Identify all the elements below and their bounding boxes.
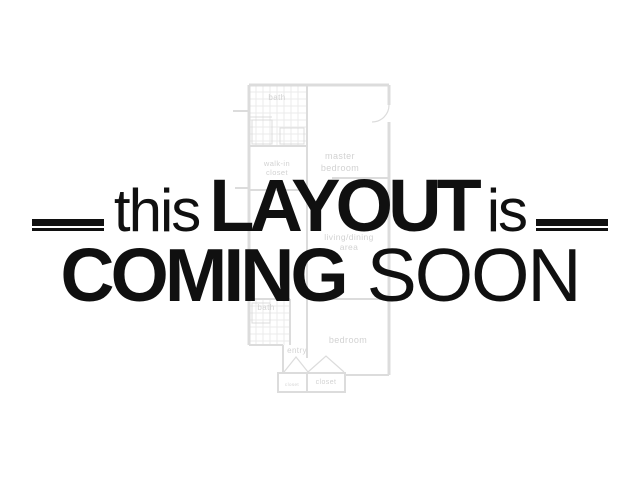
right-divider-bars [536, 219, 608, 231]
bath-upper-label: bath [268, 93, 285, 102]
headline-word-soon: SOON [367, 238, 580, 313]
right-divider-thin-rule [536, 228, 608, 231]
headline-line2: COMING SOON [0, 238, 640, 313]
left-divider-bars [32, 219, 104, 231]
bedroom-label: bedroom [329, 335, 367, 345]
headline-word-coming: COMING [60, 238, 344, 313]
headline-line1: this LAYOUT is [0, 169, 640, 243]
left-divider-thick-rule [32, 219, 104, 226]
master-bedroom-label-line1: master [325, 151, 355, 161]
headline-word-is: is [487, 181, 526, 241]
headline-word-this: this [114, 181, 199, 241]
closet-small-label: closet [285, 382, 300, 387]
entry-label: entry [287, 346, 307, 355]
coming-soon-placeholder: bath walk-in closet master bedroom livin… [0, 0, 640, 480]
headline-word-layout: LAYOUT [209, 169, 476, 243]
right-divider-thick-rule [536, 219, 608, 226]
closet-large-label: closet [316, 379, 337, 386]
left-divider-thin-rule [32, 228, 104, 231]
